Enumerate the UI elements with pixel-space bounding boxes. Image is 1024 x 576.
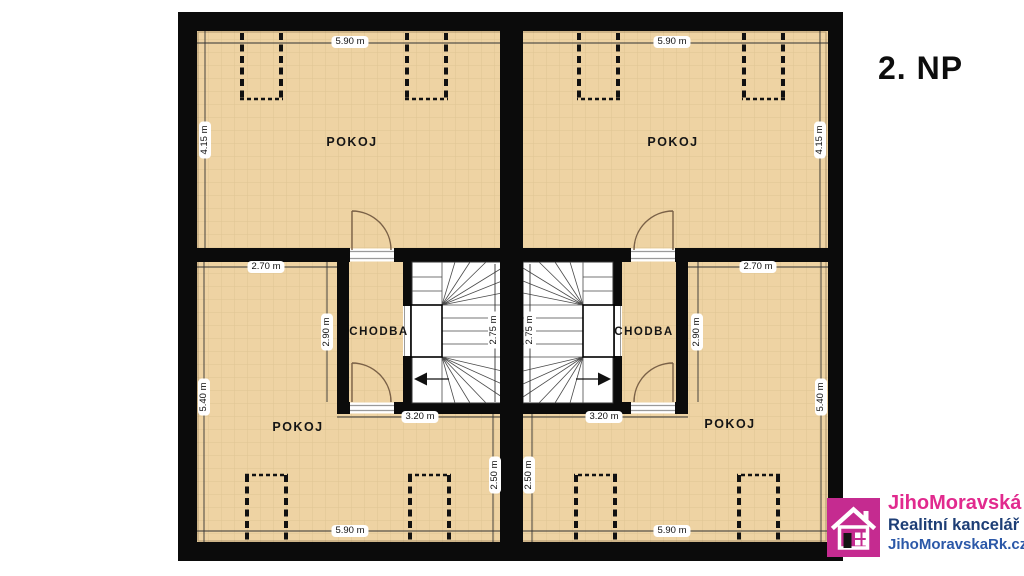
logo-house-icon	[827, 498, 880, 557]
room-label-bottom-left: POKOJ	[272, 420, 323, 434]
logo-website: JihoMoravskaRk.cz	[888, 536, 1024, 553]
floorplan-canvas: POKOJ POKOJ POKOJ POKOJ CHODBA CHODBA 5.…	[0, 0, 1024, 576]
hall-label-right: CHODBA	[614, 326, 673, 338]
dim-label: 3.20 m	[585, 411, 622, 423]
dim-label: 5.90 m	[331, 36, 368, 48]
logo-subtitle: Realitní kancelář	[888, 516, 1019, 535]
dim-label: 4.15 m	[199, 121, 211, 158]
dim-label: 2.50 m	[523, 456, 535, 493]
party-wall	[500, 12, 523, 561]
dim-label: 2.50 m	[489, 456, 501, 493]
dim-label: 2.75 m	[488, 311, 500, 348]
dim-label: 2.75 m	[524, 311, 536, 348]
room-label-top-left: POKOJ	[326, 135, 377, 149]
logo-brand-name: JihoMoravská	[888, 492, 1021, 515]
dim-label: 2.70 m	[247, 261, 284, 273]
dim-label: 2.90 m	[321, 313, 333, 350]
dim-label: 5.90 m	[653, 525, 690, 537]
dim-label: 5.40 m	[198, 378, 210, 415]
dim-label: 5.90 m	[331, 525, 368, 537]
dim-label: 5.40 m	[815, 378, 827, 415]
room-label-bottom-right: POKOJ	[704, 417, 755, 431]
floorplan-drawing	[0, 0, 1024, 576]
dim-label: 2.70 m	[739, 261, 776, 273]
floor-title: 2. NP	[878, 50, 963, 87]
hall-label-left: CHODBA	[349, 326, 408, 338]
dim-label: 2.90 m	[691, 313, 703, 350]
dim-label: 3.20 m	[401, 411, 438, 423]
dim-label: 4.15 m	[814, 121, 826, 158]
room-label-top-right: POKOJ	[647, 135, 698, 149]
dim-label: 5.90 m	[653, 36, 690, 48]
